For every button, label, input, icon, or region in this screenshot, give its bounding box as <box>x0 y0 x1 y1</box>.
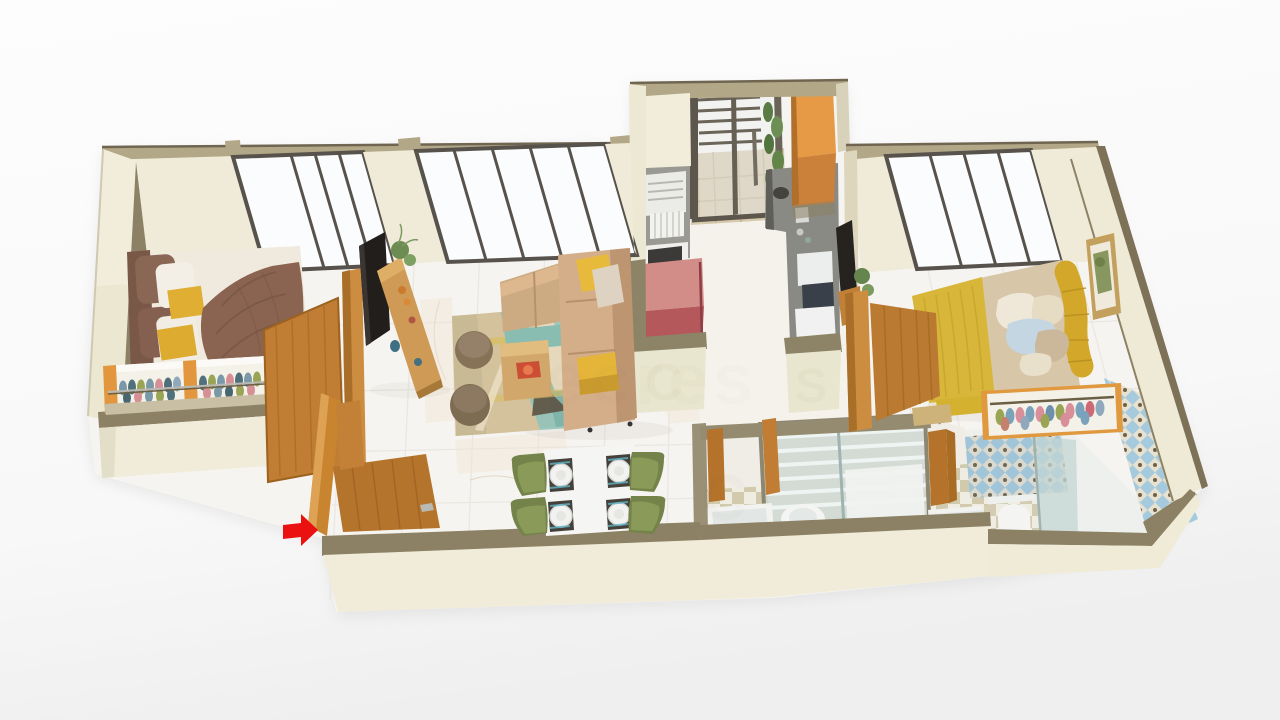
svg-text:C: C <box>700 460 748 534</box>
svg-text:ecres: ecres <box>545 340 758 420</box>
svg-text:S: S <box>795 360 827 413</box>
